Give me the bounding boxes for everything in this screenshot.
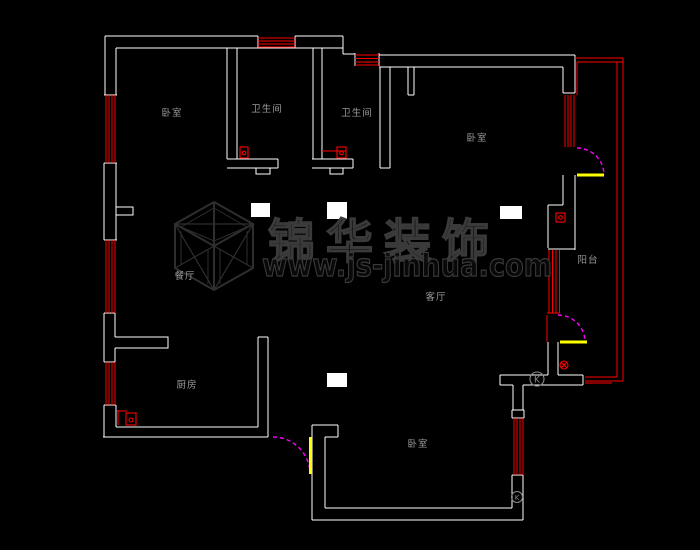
room-label-kitchen: 厨房 (176, 377, 197, 391)
room-label-bedroom-top-left: 卧室 (161, 105, 182, 119)
door-balcony (558, 315, 587, 342)
watermark-website-text: www.js-jinhua.com (262, 248, 552, 284)
room-label-bedroom-top-right: 卧室 (466, 130, 487, 144)
bath2-door-symbol (322, 147, 346, 158)
bath1-door-symbol (240, 147, 248, 158)
room-label-bathroom-1: 卫生间 (251, 101, 283, 115)
door-right-upper (577, 148, 604, 175)
room-label-balcony: 阳台 (577, 252, 598, 266)
door-entry (273, 437, 311, 474)
balcony-door-symbol (556, 213, 565, 222)
kitchen-door-symbol (117, 410, 136, 425)
balcony-outline (575, 58, 623, 383)
floor-plan-canvas: K K 锦华装饰 www.js-jinhua.com 卧室 卫生间 卫生间 卧室… (0, 0, 700, 550)
fixture-letter-2: K (515, 494, 520, 502)
crossed-circle-symbol (560, 361, 568, 369)
room-label-bathroom-2: 卫生间 (341, 105, 373, 119)
room-label-dining: 餐厅 (174, 268, 195, 282)
room-label-bedroom-bottom: 卧室 (407, 436, 428, 450)
room-label-living: 客厅 (425, 289, 446, 303)
fixture-symbols (512, 372, 545, 503)
fixture-letter-1: K (534, 376, 541, 386)
